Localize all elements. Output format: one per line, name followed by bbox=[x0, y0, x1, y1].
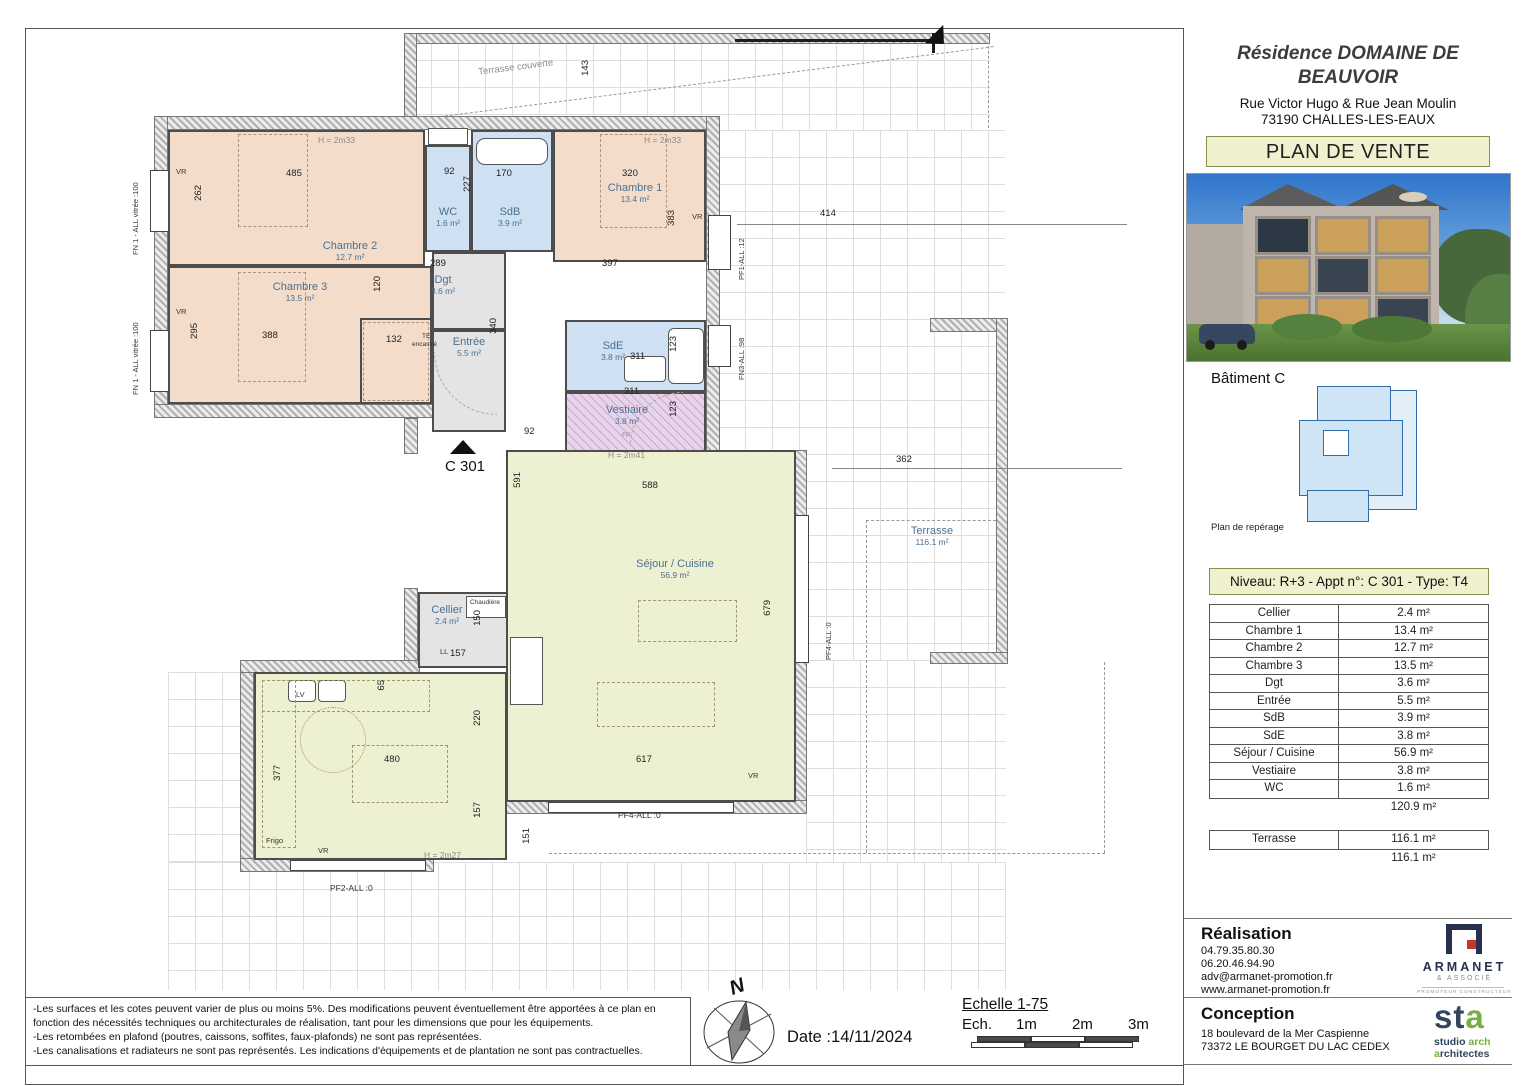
table-row: Vestiaire3.8 m² bbox=[1210, 763, 1488, 781]
table-row: Séjour / Cuisine56.9 m² bbox=[1210, 745, 1488, 763]
mini-stairwell bbox=[1323, 430, 1349, 456]
sta-logo-line1: studio arch bbox=[1434, 1036, 1491, 1048]
height-label: H = 2m27 bbox=[424, 850, 461, 860]
title-block-panel: Résidence DOMAINE DE BEAUVOIR Rue Victor… bbox=[1183, 28, 1512, 1085]
dim: 679 bbox=[762, 600, 773, 616]
realisation-phone2: 06.20.46.94.90 bbox=[1201, 958, 1274, 970]
footer-rule bbox=[691, 1065, 1183, 1066]
mini-block-main bbox=[1299, 420, 1403, 496]
photo-window bbox=[1315, 256, 1371, 295]
disclaimer-line: -Les retombées en plafond (poutres, cais… bbox=[33, 1031, 683, 1045]
dim: 383 bbox=[666, 210, 677, 226]
ll-tag: LL bbox=[440, 647, 448, 656]
armanet-logo-rule bbox=[1422, 987, 1504, 988]
lv-tag: LV bbox=[296, 690, 305, 699]
residence-title-line1: Résidence DOMAINE DE bbox=[1184, 42, 1512, 66]
photo-window bbox=[1255, 256, 1311, 295]
dim: 151 bbox=[521, 828, 532, 844]
label-wc: WC 1.6 m² bbox=[420, 206, 476, 228]
plan-de-vente-banner: PLAN DE VENTE bbox=[1206, 136, 1490, 167]
conception-address2: 73372 LE BOURGET DU LAC CEDEX bbox=[1201, 1041, 1390, 1053]
armanet-logo-red-square bbox=[1467, 940, 1476, 949]
apartment-table: Cellier2.4 m² Chambre 113.4 m² Chambre 2… bbox=[1209, 604, 1489, 799]
photo-window bbox=[1315, 216, 1371, 255]
label-terrasse: Terrasse 116.1 m² bbox=[872, 525, 992, 547]
disclaimer-line: -Les surfaces et les cotes peuvent varie… bbox=[33, 1003, 683, 1031]
terrasse-row: Terrasse116.1 m² bbox=[1209, 830, 1489, 850]
table-row: Dgt3.6 m² bbox=[1210, 675, 1488, 693]
table-row: Chambre 212.7 m² bbox=[1210, 640, 1488, 658]
dim: 123 bbox=[668, 401, 679, 417]
dim: 340 bbox=[488, 318, 499, 334]
photo-window bbox=[1375, 256, 1431, 295]
reperage-caption: Plan de repérage bbox=[1211, 522, 1284, 533]
table-subtotal: 120.9 m² bbox=[1338, 801, 1489, 813]
wall bbox=[706, 116, 720, 456]
joinery-tag: PF1-ALL :12 bbox=[737, 200, 746, 280]
te-tag: TE bbox=[422, 333, 430, 340]
building-photo bbox=[1186, 173, 1511, 362]
floor-plan: C 301 Chambre 2 12.7 m² Chambre 1 13.4 m… bbox=[0, 0, 1183, 997]
residence-address2: 73190 CHALLES-LES-EAUX bbox=[1184, 112, 1512, 127]
photo-car-wheel bbox=[1237, 340, 1247, 350]
joinery-tag: FN3-ALL :98 bbox=[737, 300, 746, 380]
table-row: Chambre 113.4 m² bbox=[1210, 623, 1488, 641]
label-chambre3: Chambre 3 13.5 m² bbox=[240, 281, 360, 303]
scale-ech-label: Ech. bbox=[962, 1016, 992, 1033]
dim: 311 bbox=[630, 351, 645, 362]
kitchen-counter bbox=[352, 745, 448, 803]
frigo-tag: Frigo bbox=[266, 836, 283, 845]
dim: 262 bbox=[193, 185, 204, 201]
boundary-line bbox=[735, 39, 935, 42]
photo-parasol bbox=[1399, 192, 1427, 202]
photo-car-wheel bbox=[1205, 340, 1215, 350]
apartment-id: C 301 bbox=[430, 458, 500, 475]
label-dgt: Dgt 3.6 m² bbox=[408, 274, 478, 296]
label-chambre1: Chambre 1 13.4 m² bbox=[575, 182, 695, 204]
dim: 485 bbox=[286, 168, 302, 179]
sta-logo-line2: architectes bbox=[1434, 1048, 1489, 1060]
scale-title: Echelle 1-75 bbox=[962, 996, 1048, 1014]
conception-address1: 18 boulevard de la Mer Caspienne bbox=[1201, 1028, 1369, 1040]
terrace-dashed-line bbox=[549, 853, 1105, 854]
room-wc bbox=[425, 145, 471, 252]
dim: 220 bbox=[472, 710, 483, 726]
armanet-logo-sub: & ASSOCIÉ bbox=[1412, 975, 1517, 982]
bathtub bbox=[476, 138, 548, 165]
terrasse-total: 116.1 m² bbox=[1338, 852, 1489, 864]
label-sejour: Séjour / Cuisine 56.9 m² bbox=[605, 558, 745, 580]
reperage-mini-plan bbox=[1289, 380, 1429, 530]
height-label: H = 2m33 bbox=[318, 135, 355, 145]
realisation-heading: Réalisation bbox=[1201, 924, 1292, 944]
wall bbox=[154, 404, 440, 418]
window bbox=[290, 860, 426, 871]
dim: 480 bbox=[384, 754, 400, 765]
bed-chambre2 bbox=[238, 134, 308, 227]
compass bbox=[700, 996, 780, 1066]
realisation-email[interactable]: adv@armanet-promotion.fr bbox=[1201, 971, 1333, 983]
washbasin bbox=[428, 128, 468, 145]
batiment-label: Bâtiment C bbox=[1211, 370, 1285, 387]
label-cellier: Cellier 2.4 m² bbox=[416, 604, 478, 626]
terrace-grid-bottom bbox=[168, 862, 1006, 990]
vr-tag: VR bbox=[176, 307, 186, 316]
mini-block-lower bbox=[1307, 490, 1369, 522]
dim: 617 bbox=[636, 754, 652, 765]
dim: 388 bbox=[262, 330, 278, 341]
neighbor-wall bbox=[930, 652, 1008, 664]
scale-bar bbox=[971, 1036, 1141, 1048]
dim: 362 bbox=[896, 454, 912, 465]
photo-window bbox=[1375, 216, 1431, 255]
height-label: H = 2m33 bbox=[644, 135, 681, 145]
dim: 588 bbox=[642, 480, 658, 491]
dim: 65 bbox=[376, 680, 387, 691]
scale-1m-label: 1m bbox=[1016, 1016, 1037, 1033]
table-row: Entrée5.5 m² bbox=[1210, 693, 1488, 711]
label-entree: Entrée 5.5 m² bbox=[432, 336, 506, 358]
table-row: WC1.6 m² bbox=[1210, 780, 1488, 798]
label-chambre2: Chambre 2 12.7 m² bbox=[290, 240, 410, 262]
dim: 591 bbox=[512, 472, 523, 488]
dim: 295 bbox=[189, 323, 200, 339]
dim: 311 bbox=[624, 386, 639, 397]
dim: 414 bbox=[820, 208, 836, 219]
residence-title-line2: BEAUVOIR bbox=[1184, 66, 1512, 90]
armanet-logo-name: ARMANET bbox=[1412, 960, 1517, 974]
dim: 377 bbox=[272, 765, 283, 781]
te-tag: encastré bbox=[412, 341, 437, 348]
photo-building-left bbox=[1187, 224, 1245, 332]
dim-line bbox=[737, 224, 1127, 225]
date-label: Date :14/11/2024 bbox=[787, 1028, 912, 1047]
disclaimer-box: -Les surfaces et les cotes peuvent varie… bbox=[25, 997, 691, 1066]
dim: 227 bbox=[462, 176, 473, 192]
vr-tag: VR bbox=[318, 846, 328, 855]
joinery-tag: PF4-ALL :0 bbox=[618, 810, 661, 820]
joinery-tag: FN 1 - ALL vitrée :100 bbox=[131, 160, 140, 255]
residence-address1: Rue Victor Hugo & Rue Jean Moulin bbox=[1184, 96, 1512, 111]
conception-heading: Conception bbox=[1201, 1004, 1295, 1024]
dim: 120 bbox=[372, 276, 383, 292]
bed-chambre1 bbox=[600, 134, 667, 228]
joinery-tag: FN 1 - ALL vitrée :100 bbox=[131, 300, 140, 395]
dim: 143 bbox=[580, 60, 591, 76]
dim: 157 bbox=[472, 802, 483, 818]
sta-logo-mark: sta bbox=[1434, 1000, 1485, 1033]
terrace-dashed-line bbox=[866, 520, 867, 853]
terrace-grid-right-low bbox=[806, 660, 1006, 862]
realisation-website[interactable]: www.armanet-promotion.fr bbox=[1201, 984, 1330, 996]
dim-line bbox=[832, 468, 1122, 469]
table-row: SdB3.9 m² bbox=[1210, 710, 1488, 728]
joinery-tag: PF2-ALL :0 bbox=[330, 883, 373, 893]
terrace-dashed-line bbox=[866, 520, 996, 521]
dim: 92 bbox=[444, 166, 455, 177]
dim: 150 bbox=[472, 610, 483, 626]
sejour-closet bbox=[510, 637, 543, 705]
disclaimer-line: -Les canalisations et radiateurs ne sont… bbox=[33, 1045, 683, 1059]
kitchen-stove bbox=[300, 707, 366, 773]
table-row: Chambre 313.5 m² bbox=[1210, 658, 1488, 676]
chaudiere-tag: Chaudière bbox=[470, 599, 500, 606]
photo-bush bbox=[1352, 316, 1432, 342]
residence-title: Résidence DOMAINE DE BEAUVOIR bbox=[1184, 42, 1512, 90]
dim: 123 bbox=[668, 336, 679, 352]
joinery-tag: PF4-ALL :0 bbox=[824, 575, 833, 660]
height-label: H = 2m41 bbox=[608, 450, 645, 460]
wall bbox=[404, 418, 418, 454]
window bbox=[150, 170, 169, 232]
realisation-phone1: 04.79.35.80.30 bbox=[1201, 945, 1274, 957]
kitchen-island bbox=[638, 600, 737, 642]
dim: 92 bbox=[524, 426, 535, 437]
label-vestiaire: Vestiaire 3.8 m² bbox=[577, 404, 677, 426]
terrace-grid-left-low bbox=[168, 672, 242, 862]
window bbox=[708, 215, 731, 270]
table-row: Cellier2.4 m² bbox=[1210, 605, 1488, 623]
vr-tag: VR bbox=[176, 167, 186, 176]
wall bbox=[240, 672, 254, 872]
apartment-table-header: Niveau: R+3 - Appt n°: C 301 - Type: T4 bbox=[1209, 568, 1489, 595]
dim: 289 bbox=[430, 258, 446, 269]
armanet-logo-mark bbox=[1446, 924, 1482, 954]
terrace-dashed-line bbox=[988, 36, 989, 128]
dining-table bbox=[597, 682, 715, 727]
dim: 157 bbox=[450, 648, 466, 659]
armanet-logo-tagline: PROMOTEUR CONSTRUCTEUR bbox=[1412, 990, 1517, 995]
photo-window bbox=[1255, 216, 1311, 255]
dim: 320 bbox=[622, 168, 638, 179]
entrance-north-triangle bbox=[450, 440, 476, 454]
dim: 397 bbox=[602, 258, 618, 269]
terrace-dashed-line bbox=[1104, 662, 1105, 853]
vr-tag: VR bbox=[692, 212, 702, 221]
scale-2m-label: 2m bbox=[1072, 1016, 1093, 1033]
compass-rose bbox=[700, 996, 780, 1066]
separator bbox=[1184, 918, 1512, 919]
label-sdb: SdB 3.9 m² bbox=[470, 206, 550, 228]
neighbor-wall bbox=[996, 318, 1008, 664]
kitchen-counter-left bbox=[262, 680, 296, 848]
separator bbox=[1184, 1064, 1512, 1065]
window bbox=[150, 330, 169, 392]
fp-tag: FP bbox=[622, 432, 630, 439]
photo-bush bbox=[1272, 314, 1342, 340]
dim: 132 bbox=[386, 334, 402, 345]
dim: 170 bbox=[496, 168, 512, 179]
table-row: SdE3.8 m² bbox=[1210, 728, 1488, 746]
scale-3m-label: 3m bbox=[1128, 1016, 1149, 1033]
vr-tag: VR bbox=[748, 771, 758, 780]
window bbox=[708, 325, 731, 367]
